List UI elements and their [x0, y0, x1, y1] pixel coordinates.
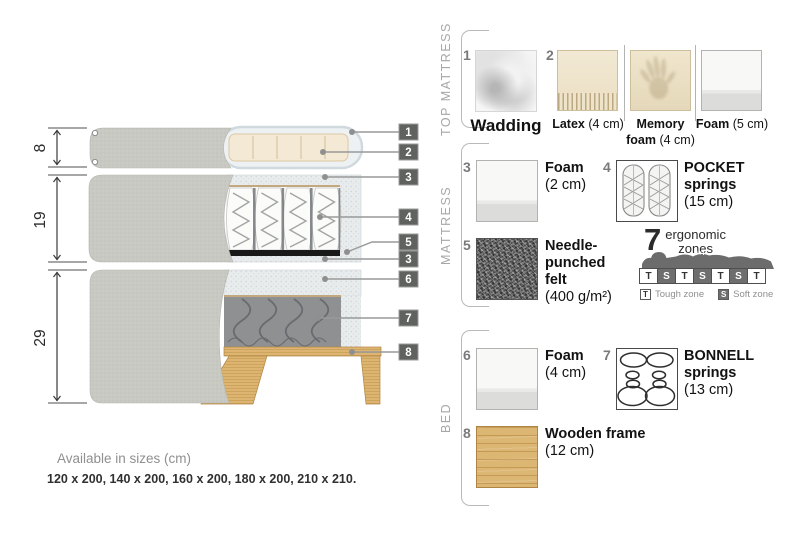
pocket-springs-thumbnail [616, 160, 678, 222]
foam2-name: Foam [545, 160, 627, 177]
svg-text:3: 3 [405, 254, 411, 266]
pocket-springs-icon [617, 161, 676, 220]
option-divider [695, 45, 696, 121]
layer-tag-5: 5 [399, 234, 418, 250]
foam5-thumbnail [701, 50, 762, 111]
hand-imprint-icon [631, 51, 690, 110]
section-label-bed: BED [437, 330, 455, 506]
latex-caption: Latex (4 cm) [546, 117, 630, 133]
zone-bar: T S T S T S T [640, 268, 766, 284]
foam4-label: Foam (4 cm) [545, 348, 627, 382]
foam2-label: Foam (2 cm) [545, 160, 627, 194]
latex-thumbnail [557, 50, 618, 111]
pocket-springs-detail: (15 cm) [684, 194, 770, 211]
top-mattress-cover [90, 128, 231, 168]
foam5-caption: Foam (5 cm) [692, 117, 772, 133]
felt-label: Needle-punched felt (400 g/m²) [545, 238, 625, 306]
mattress-cover [89, 175, 233, 262]
pocket-springs-label: POCKET springs (15 cm) [684, 160, 770, 211]
felt-name: Needle-punched felt [545, 238, 625, 289]
foam4-thumbnail [476, 348, 538, 410]
layer-tag-3b: 3 [399, 251, 418, 267]
dim-bed: 29 [32, 329, 49, 346]
sizes-title: Available in sizes (cm) [57, 451, 191, 466]
zone-legend: T Tough zone S Soft zone [640, 289, 773, 300]
foam2-thumbnail [476, 160, 538, 222]
svg-text:1: 1 [405, 127, 412, 139]
pocket-springs-drawing [227, 188, 341, 250]
needle-felt-band [227, 250, 340, 256]
item-number-1: 1 [463, 47, 471, 63]
bonnell-springs-icon [617, 349, 676, 408]
item-number-6: 6 [463, 347, 471, 363]
dimension-ticks [48, 128, 87, 403]
tough-zone-key: T [640, 289, 651, 300]
option-divider [624, 45, 625, 121]
sizes-values: 120 x 200, 140 x 200, 160 x 200, 180 x 2… [47, 472, 356, 486]
bonnell-top-tape [224, 295, 341, 297]
memory-foam-thumbnail [630, 50, 691, 111]
item-number-8: 8 [463, 425, 471, 441]
wooden-leg-right [361, 356, 380, 404]
dim-top-mattress: 8 [32, 144, 49, 153]
item-number-7: 7 [603, 347, 611, 363]
foam4-detail: (4 cm) [545, 365, 627, 382]
svg-text:8: 8 [405, 347, 412, 359]
svg-text:3: 3 [405, 172, 411, 184]
layer-tag-4: 4 [399, 209, 418, 225]
wadding-thumbnail [475, 50, 537, 112]
bonnell-springs-label: BONNELL springs (13 cm) [684, 348, 774, 399]
zone-cell: T [747, 268, 766, 284]
ergonomic-line1: ergonomic [665, 227, 726, 242]
item-number-2: 2 [546, 47, 554, 63]
layer-tag-3: 3 [399, 169, 418, 185]
cover-button [92, 159, 97, 164]
wood-thumbnail [476, 426, 538, 488]
felt-detail: (400 g/m²) [545, 289, 625, 306]
svg-text:7: 7 [405, 313, 411, 325]
zone-cell: T [675, 268, 694, 284]
dimension-labels: 8 19 29 [32, 144, 49, 347]
tough-zone-label: Tough zone [655, 289, 704, 300]
layer-tag-6: 6 [399, 271, 418, 287]
bed-top-foam [224, 270, 361, 296]
memory-foam-detail: (4 cm) [659, 133, 694, 147]
lying-person-icon [640, 251, 776, 269]
svg-text:4: 4 [405, 212, 412, 224]
wood-label: Wooden frame (12 cm) [545, 426, 675, 460]
zone-cell: S [693, 268, 712, 284]
zone-cell: S [729, 268, 748, 284]
felt-thumbnail [476, 238, 538, 300]
bonnell-springs-name: BONNELL springs [684, 348, 774, 382]
zone-cell: T [639, 268, 658, 284]
wood-name: Wooden frame [545, 426, 675, 443]
wood-detail: (12 cm) [545, 443, 675, 460]
bed-side-foam [341, 296, 361, 347]
spring-top-tape [227, 185, 340, 187]
top-mattress-layer [90, 127, 362, 168]
item-number-5: 5 [463, 237, 471, 253]
zone-cell: T [711, 268, 730, 284]
soft-zone-key: S [718, 289, 729, 300]
svg-text:2: 2 [405, 147, 411, 159]
memory-foam-caption: Memory foam (4 cm) [622, 117, 699, 148]
layer-tag-7: 7 [399, 310, 418, 326]
foam2-detail: (2 cm) [545, 177, 627, 194]
dimension-arrows [54, 130, 61, 401]
foam4-name: Foam [545, 348, 627, 365]
layer-tag-8: 8 [399, 344, 418, 360]
item-number-3: 3 [463, 159, 471, 175]
latex-detail: (4 cm) [588, 117, 623, 131]
bonnell-springs-thumbnail [616, 348, 678, 410]
wadding-caption: Wadding [452, 115, 560, 136]
foam5-name: Foam [696, 117, 729, 131]
section-label-mattress: MATTRESS [437, 143, 455, 307]
layer-tag-2: 2 [399, 144, 418, 160]
layer-tags: 1 2 3 4 5 3 6 [399, 124, 418, 360]
bed-cover [90, 270, 229, 403]
svg-text:5: 5 [405, 237, 412, 249]
latex-name: Latex [552, 117, 585, 131]
cover-button [92, 130, 97, 135]
bed-layer [90, 270, 381, 404]
zone-cell: S [657, 268, 676, 284]
foam5-detail: (5 cm) [733, 117, 768, 131]
dim-mattress: 19 [32, 211, 49, 228]
pocket-springs-name: POCKET springs [684, 160, 770, 194]
item-number-4: 4 [603, 159, 611, 175]
section-label-top-mattress: TOP MATTRESS [437, 30, 455, 128]
mattress-infographic: 8 19 29 [0, 0, 800, 533]
svg-text:6: 6 [405, 274, 411, 286]
soft-zone-label: Soft zone [733, 289, 773, 300]
bonnell-springs-detail: (13 cm) [684, 382, 774, 399]
layer-tag-1: 1 [399, 124, 418, 140]
ergonomic-zones-number: 7 [644, 226, 661, 254]
latex-blocks [229, 134, 348, 161]
